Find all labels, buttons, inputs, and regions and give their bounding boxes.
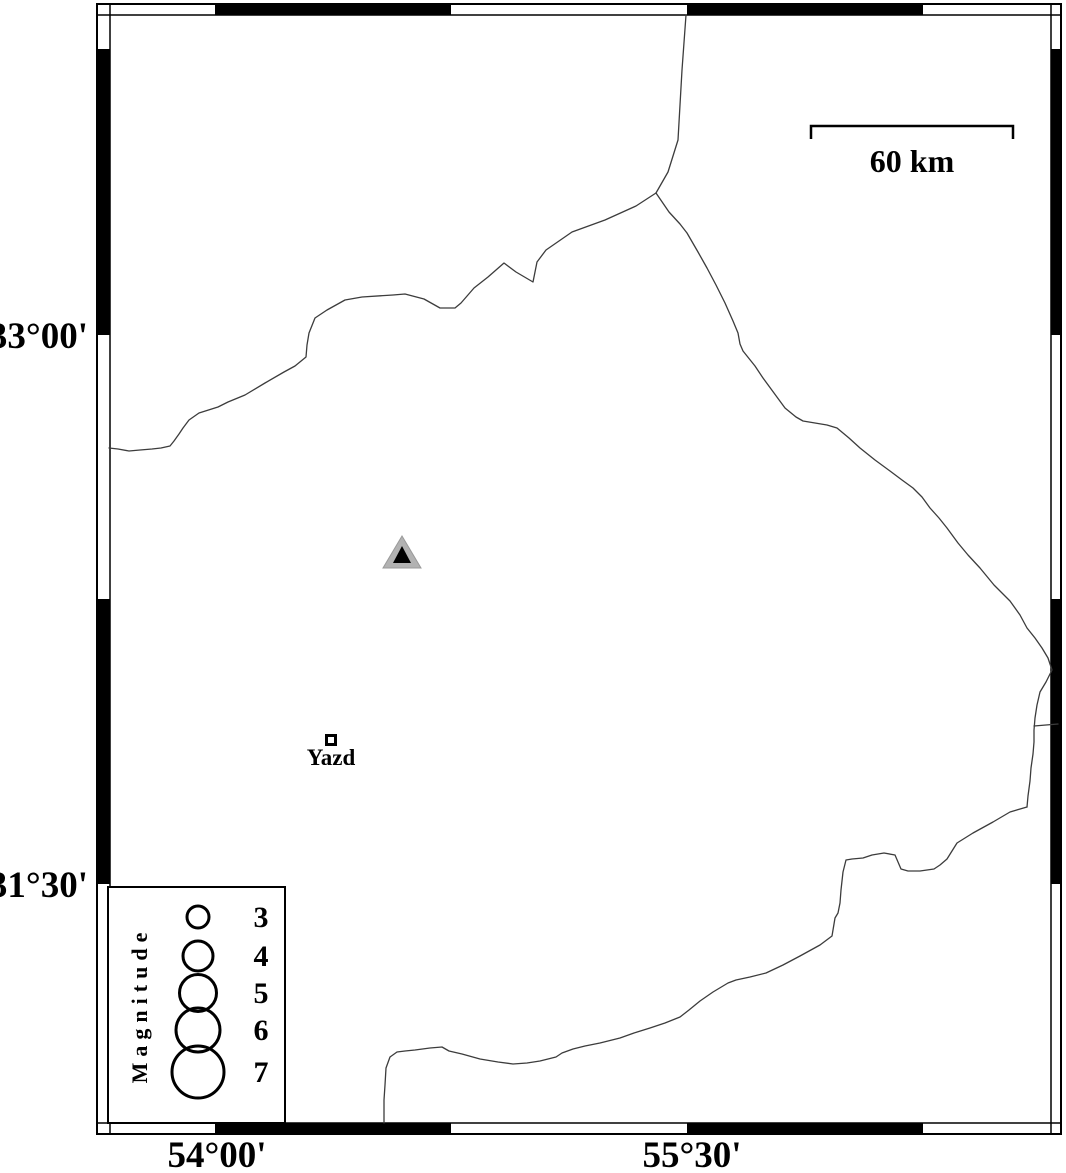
scale-bar-label: 60 km: [870, 143, 955, 179]
province-boundary-line: [656, 15, 686, 193]
lon-label-54-00: 54°00': [167, 1135, 266, 1173]
scale-bar-bracket: [811, 126, 1013, 139]
frame-checker-right: [1051, 49, 1061, 335]
map-markers: [327, 536, 422, 745]
lat-label-33-00: 33°00': [0, 316, 88, 357]
frame-checker-top: [215, 4, 451, 15]
frame-checker-bottom: [687, 1123, 923, 1134]
legend-title: Magnitude: [127, 927, 152, 1084]
city-label-yazd: Yazd: [307, 745, 356, 770]
frame-checker-top: [687, 4, 923, 15]
magnitude-value-5: 5: [254, 977, 269, 1010]
magnitude-value-7: 7: [254, 1056, 269, 1089]
lat-label-31-30: 31°30': [0, 865, 88, 906]
magnitude-value-4: 4: [254, 940, 269, 973]
frame-checker-right: [1051, 599, 1061, 884]
frame-checker-left: [97, 49, 110, 335]
frame-checker-left: [97, 599, 110, 884]
magnitude-value-3: 3: [254, 901, 269, 934]
map-canvas: 33°00' 31°30' 54°00' 55°30' 60 km Yazd 3…: [0, 0, 1066, 1173]
magnitude-value-6: 6: [254, 1014, 269, 1047]
province-boundary-line: [109, 193, 656, 451]
map-figure: 33°00' 31°30' 54°00' 55°30' 60 km Yazd 3…: [0, 0, 1066, 1173]
city-square-yazd: [327, 736, 336, 745]
frame-checker-bottom: [215, 1123, 451, 1134]
map-scale-bar: [811, 126, 1013, 139]
province-boundary-line: [384, 807, 1027, 1123]
lon-label-55-30: 55°30': [642, 1135, 741, 1173]
province-boundary-line: [656, 193, 1052, 807]
